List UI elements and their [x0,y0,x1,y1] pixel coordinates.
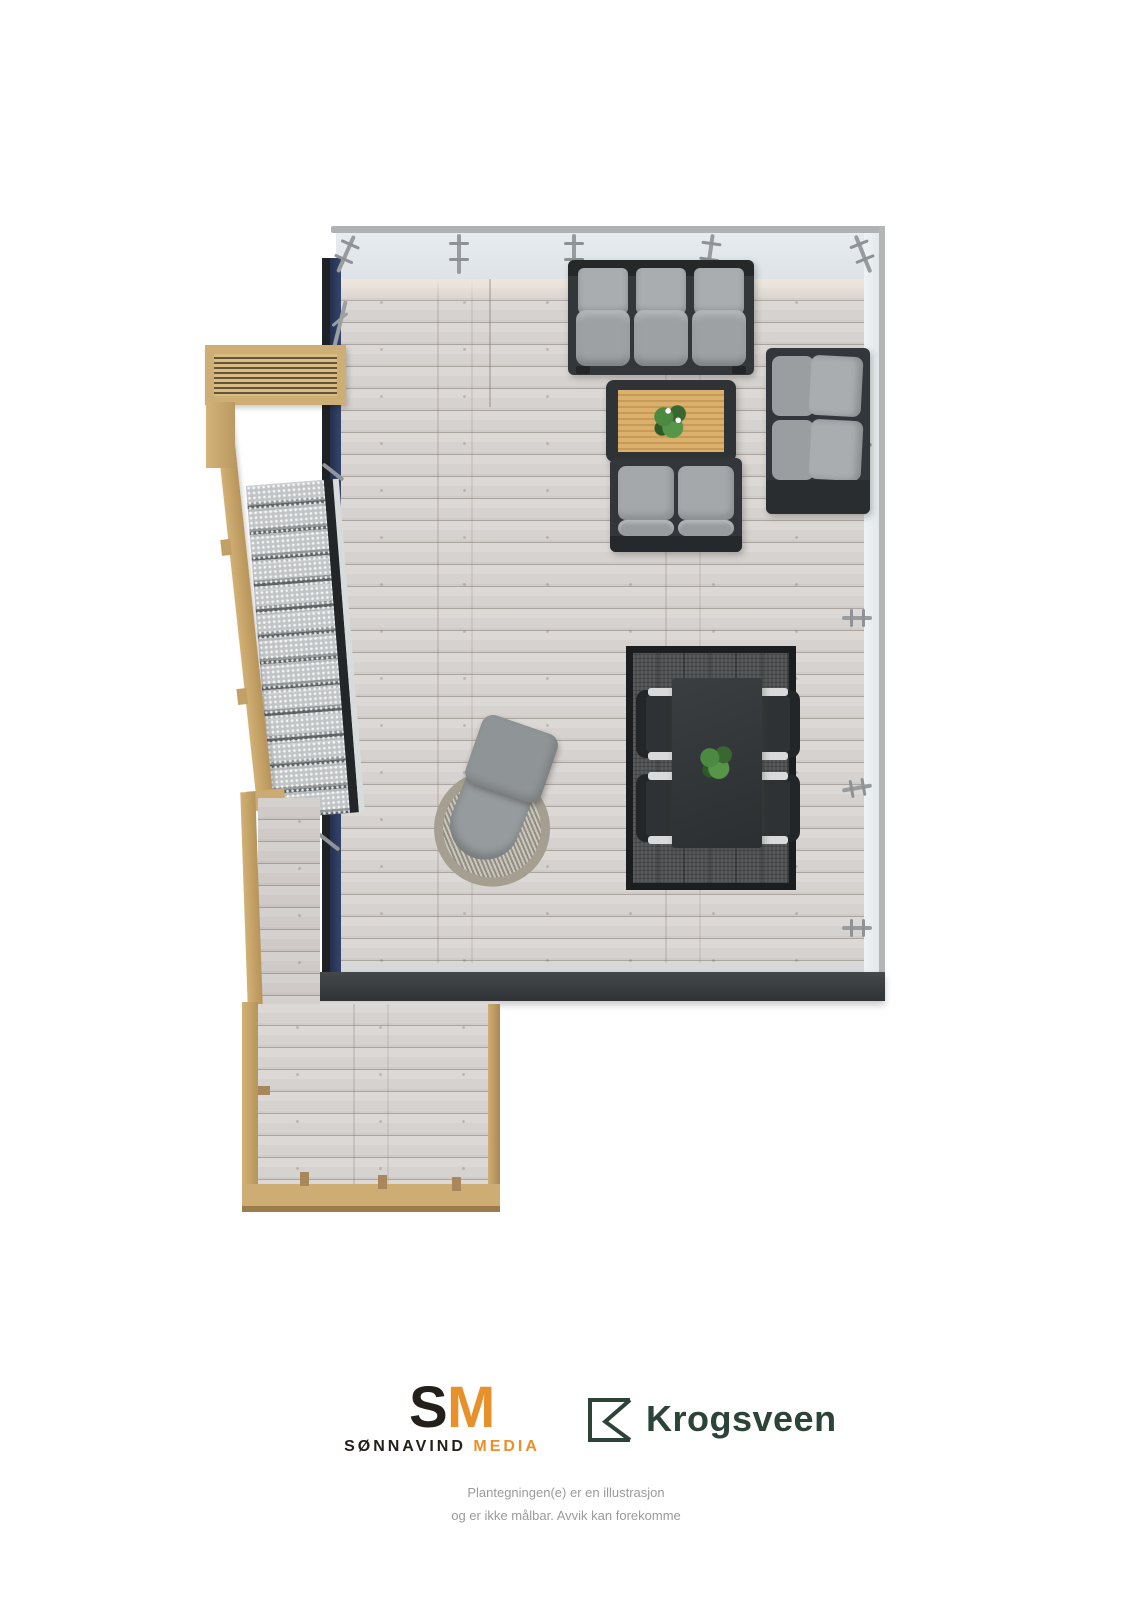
sofa-back-cushion [694,268,744,314]
glass-railing-right-panel [864,233,879,985]
walkway-bottom-wood-border [242,1184,500,1212]
sofa-back-cushion [618,466,674,520]
sonnavind-media-wordmark: SØNNAVIND MEDIA [326,1438,558,1456]
walkway-joist-nub [452,1177,461,1191]
sofa-seat-cushion [772,420,814,480]
walkway-joist-nub [258,1086,270,1095]
sm-monogram-m: M [447,1380,495,1436]
sofa-back-cushion [808,355,863,418]
walkway-joist-nub [300,1172,309,1186]
sonnavind-media-logo: S M [403,1380,553,1436]
walkway-joist-nub [378,1175,387,1189]
three-seat-sofa [568,260,754,375]
krogsveen-wordmark: Krogsveen [646,1398,837,1440]
sm-monogram-s: S [409,1380,448,1436]
sofa-seat-cushion [576,310,630,366]
railing-post-nub [220,539,232,556]
railing-post-icon [842,616,872,620]
two-seat-sofa [610,458,742,552]
two-seat-corner-sofa [766,348,870,514]
bottom-fascia-edge [305,972,885,1001]
media-text: MEDIA [473,1438,540,1455]
disclaimer-line-1: Plantegningen(e) er en illustrasjon [365,1482,767,1505]
sofa-back-cushion [636,268,686,314]
flower-plant-icon [653,403,689,439]
sofa-foot [732,366,746,374]
railing-post-icon [457,234,461,274]
sofa-back-cushion [678,466,734,520]
deck-section-seam [489,279,491,407]
glass-railing-top-frame [331,226,884,233]
walkway-right-wood-border [488,1004,500,1202]
railing-post-icon [842,926,872,930]
disclaimer-line-2: og er ikke målbar. Avvik kan forekomme [365,1505,767,1528]
krogsveen-logo-icon [586,1396,634,1444]
railing-post-nub [236,688,248,705]
walkway-shade [258,798,320,1004]
sofa-seat-cushion [634,310,688,366]
plant-icon [699,744,735,780]
glass-railing-right-frame [879,226,885,992]
sofa-seat-cushion [678,520,734,536]
sofa-back-cushion [808,419,863,482]
sofa-seat-cushion [772,356,814,416]
sofa-seat-cushion [618,520,674,536]
sofa-back-cushion [578,268,628,314]
sofa-foot [576,366,590,374]
wood-bench-side [206,402,235,468]
walkway-left-wood-border [242,1002,258,1204]
sofa-seat-cushion [692,310,746,366]
disclaimer-text: Plantegningen(e) er en illustrasjon og e… [365,1482,767,1528]
sonnavind-text: SØNNAVIND [344,1438,466,1455]
walkway-lower-deck [256,1004,489,1186]
floorplan-canvas: S M SØNNAVIND MEDIA Krogsveen Plantegnin… [0,0,1131,1600]
wood-slat-bench [205,345,346,405]
